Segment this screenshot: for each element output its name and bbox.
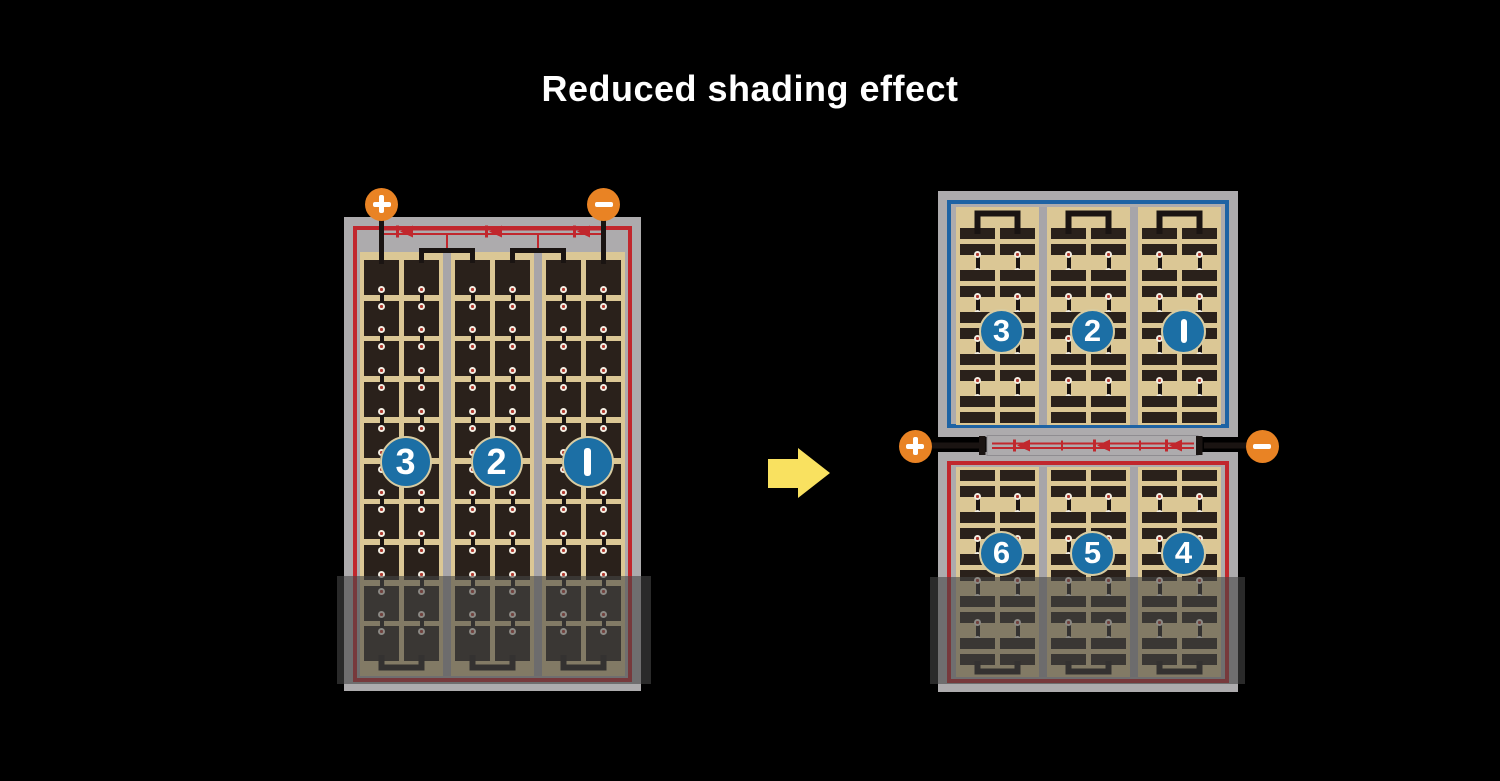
connector-dot xyxy=(509,343,516,350)
cell-connector xyxy=(508,326,518,350)
negative-terminal xyxy=(587,188,620,221)
half-cut-cell xyxy=(1182,470,1217,481)
connector-dot xyxy=(418,425,425,432)
connector-dot xyxy=(1014,493,1021,500)
minus-icon xyxy=(1253,444,1271,449)
connector-dot xyxy=(560,506,567,513)
string-badge-1 xyxy=(1161,309,1206,354)
shading-overlay xyxy=(337,576,651,684)
connector-dot xyxy=(1065,535,1072,542)
half-cut-cell xyxy=(960,354,995,365)
string-badge-6: 6 xyxy=(979,531,1024,576)
diode-bar xyxy=(1013,440,1016,452)
digit-one-bar xyxy=(1181,319,1187,343)
connector-dot xyxy=(378,286,385,293)
connector-dot xyxy=(378,489,385,496)
connector-dot xyxy=(509,326,516,333)
half-cut-cell xyxy=(1182,228,1217,239)
connector-dot xyxy=(509,408,516,415)
connector-dot xyxy=(560,303,567,310)
half-cut-cell xyxy=(1091,396,1126,407)
half-cut-cell xyxy=(1142,228,1177,239)
string-badge-4: 4 xyxy=(1161,531,1206,576)
negative-terminal xyxy=(1246,430,1279,463)
half-cut-cell xyxy=(1000,412,1035,423)
connector-dot xyxy=(600,384,607,391)
connector-dot xyxy=(1014,293,1021,300)
cell-connector xyxy=(599,326,609,350)
half-cut-cell xyxy=(1051,512,1086,523)
half-cut-cell xyxy=(1091,470,1126,481)
cell-connector xyxy=(417,286,427,310)
cell-connector xyxy=(599,286,609,310)
cell-connector xyxy=(559,326,569,350)
circuit-wiring xyxy=(0,0,1500,781)
connector-dot xyxy=(378,506,385,513)
connector-dot xyxy=(378,384,385,391)
connector-dot xyxy=(378,326,385,333)
cell-connector xyxy=(417,326,427,350)
connector-dot xyxy=(560,367,567,374)
diode-triangle xyxy=(1169,440,1182,452)
connector-dot xyxy=(509,506,516,513)
cell-connector xyxy=(508,408,518,432)
connector-dot xyxy=(974,493,981,500)
half-cut-cell xyxy=(1091,354,1126,365)
connector-dot xyxy=(378,425,385,432)
connector-dot xyxy=(469,286,476,293)
connector-dot xyxy=(1156,493,1163,500)
diode-bar xyxy=(1093,440,1096,452)
column-separator xyxy=(1130,207,1138,425)
connector-dot xyxy=(378,367,385,374)
connector-dot xyxy=(600,489,607,496)
connector-dot xyxy=(418,303,425,310)
connector-dot xyxy=(1105,293,1112,300)
terminal-wire xyxy=(931,443,980,449)
string-badge-5: 5 xyxy=(1070,531,1115,576)
connector-dot xyxy=(1065,377,1072,384)
connector-dot xyxy=(418,530,425,537)
diode-bar xyxy=(1165,440,1168,452)
cell-connector xyxy=(599,530,609,554)
connector-dot xyxy=(1105,251,1112,258)
half-cut-cell xyxy=(1142,354,1177,365)
wire-tap xyxy=(1139,441,1141,451)
cell-connector xyxy=(417,489,427,513)
connector-dot xyxy=(469,384,476,391)
half-cut-cell xyxy=(1091,228,1126,239)
half-cut-cell xyxy=(1000,396,1035,407)
connector-dot xyxy=(1105,493,1112,500)
connector-dot xyxy=(560,425,567,432)
connector-dot xyxy=(378,530,385,537)
connector-dot xyxy=(560,408,567,415)
half-cut-cell xyxy=(1142,512,1177,523)
connector-dot xyxy=(418,547,425,554)
connector-dot xyxy=(560,530,567,537)
diode-triangle xyxy=(1017,440,1030,452)
connector-dot xyxy=(600,408,607,415)
connector-dot xyxy=(600,506,607,513)
connector-dot xyxy=(1156,377,1163,384)
string-badge-3: 3 xyxy=(979,309,1024,354)
connector-dot xyxy=(1156,535,1163,542)
half-cut-cell xyxy=(1142,470,1177,481)
connector-dot xyxy=(418,506,425,513)
cell-connector xyxy=(468,408,478,432)
connector-dot xyxy=(1105,377,1112,384)
connector-dot xyxy=(469,530,476,537)
connector-dot xyxy=(600,425,607,432)
connector-dot xyxy=(974,293,981,300)
connector-dot xyxy=(1196,251,1203,258)
connector-dot xyxy=(418,367,425,374)
connector-dot xyxy=(1196,377,1203,384)
connector-dot xyxy=(1196,493,1203,500)
half-cut-cell xyxy=(1182,512,1217,523)
digit-one-bar xyxy=(584,448,591,476)
connector-dot xyxy=(469,408,476,415)
half-cut-cell xyxy=(960,412,995,423)
bus-wire xyxy=(992,443,1194,445)
bus-wire xyxy=(992,447,1194,449)
connector-dot xyxy=(469,343,476,350)
connector-dot xyxy=(418,384,425,391)
string-badge-2: 2 xyxy=(471,436,523,488)
cell-connector xyxy=(468,489,478,513)
cell-connector xyxy=(468,367,478,391)
cell-connector xyxy=(508,286,518,310)
cell-connector xyxy=(468,530,478,554)
connector-dot xyxy=(1065,251,1072,258)
connector-dot xyxy=(1014,251,1021,258)
wire-tap xyxy=(1061,441,1063,451)
positive-terminal xyxy=(899,430,932,463)
half-cut-cell xyxy=(1091,412,1126,423)
column-separator xyxy=(1039,207,1047,425)
connector-dot xyxy=(974,251,981,258)
cell-connector xyxy=(468,326,478,350)
cell-connector xyxy=(559,489,569,513)
connector-dot xyxy=(600,547,607,554)
connector-dot xyxy=(418,408,425,415)
connector-dot xyxy=(418,489,425,496)
half-cut-cell xyxy=(1051,270,1086,281)
connector-dot xyxy=(1014,377,1021,384)
cell-connector xyxy=(468,286,478,310)
connector-dot xyxy=(509,286,516,293)
connector-dot xyxy=(560,326,567,333)
connector-dot xyxy=(560,343,567,350)
connector-dot xyxy=(469,547,476,554)
half-cut-cell xyxy=(1051,412,1086,423)
half-cut-cell xyxy=(1000,512,1035,523)
cell-connector xyxy=(377,367,387,391)
connector-dot xyxy=(378,303,385,310)
half-cut-cell xyxy=(1091,270,1126,281)
cell-connector xyxy=(417,408,427,432)
cell-connector xyxy=(559,408,569,432)
shading-overlay xyxy=(930,577,1245,684)
half-cut-cell xyxy=(1051,470,1086,481)
transform-arrow-icon xyxy=(768,448,830,498)
cell-connector xyxy=(599,489,609,513)
diode-icon xyxy=(1013,440,1030,452)
connector-dot xyxy=(509,367,516,374)
cell-connector xyxy=(377,408,387,432)
connector-dot xyxy=(469,489,476,496)
connector-dot xyxy=(600,326,607,333)
diode-icon xyxy=(1093,440,1110,452)
cell-connector xyxy=(508,489,518,513)
connector-dot xyxy=(974,535,981,542)
positive-terminal xyxy=(365,188,398,221)
connector-dot xyxy=(509,530,516,537)
connector-dot xyxy=(378,408,385,415)
cell-connector xyxy=(377,326,387,350)
diagram-content: 3232654 xyxy=(0,0,1500,781)
diode-triangle xyxy=(1097,440,1110,452)
cell-connector xyxy=(377,286,387,310)
connector-dot xyxy=(469,303,476,310)
cell-connector xyxy=(559,530,569,554)
half-cut-cell xyxy=(960,270,995,281)
diode-icon xyxy=(1165,440,1182,452)
connector-dot xyxy=(600,367,607,374)
connector-dot xyxy=(974,377,981,384)
half-cut-cell xyxy=(960,470,995,481)
connector-dot xyxy=(600,343,607,350)
connector-dot xyxy=(1196,293,1203,300)
string-badge-2: 2 xyxy=(1070,309,1115,354)
cell-connector xyxy=(508,530,518,554)
string-badge-3: 3 xyxy=(380,436,432,488)
connector-dot xyxy=(469,367,476,374)
cell-connector xyxy=(599,367,609,391)
connector-dot xyxy=(600,530,607,537)
cell-connector xyxy=(559,286,569,310)
half-cut-cell xyxy=(1000,228,1035,239)
connector-dot xyxy=(509,547,516,554)
half-cut-cell xyxy=(1091,512,1126,523)
half-cut-cell xyxy=(1182,396,1217,407)
diagram-canvas: Reduced shading effect 3232654 xyxy=(0,0,1500,781)
half-cut-cell xyxy=(1000,270,1035,281)
half-cut-cell xyxy=(960,512,995,523)
plus-icon-vertical xyxy=(379,195,384,213)
connector-dot xyxy=(418,286,425,293)
minus-icon xyxy=(595,202,613,207)
connector-dot xyxy=(1065,293,1072,300)
connector-dot xyxy=(509,489,516,496)
connector-dot xyxy=(418,343,425,350)
cell-connector xyxy=(377,489,387,513)
connector-dot xyxy=(1156,293,1163,300)
half-cut-cell xyxy=(960,228,995,239)
connector-dot xyxy=(560,489,567,496)
cell-connector xyxy=(417,530,427,554)
connector-dot xyxy=(1065,493,1072,500)
connector-dot xyxy=(560,286,567,293)
connector-dot xyxy=(378,547,385,554)
half-cut-cell xyxy=(1182,354,1217,365)
cell-connector xyxy=(377,530,387,554)
cell-connector xyxy=(508,367,518,391)
half-cut-cell xyxy=(1051,228,1086,239)
cell-connector xyxy=(559,367,569,391)
half-cut-cell xyxy=(1000,354,1035,365)
half-cut-cell xyxy=(1142,412,1177,423)
connector-dot xyxy=(560,384,567,391)
cell-connector xyxy=(417,367,427,391)
plus-icon-vertical xyxy=(913,437,918,455)
string-badge-1 xyxy=(562,436,614,488)
connector-dot xyxy=(509,384,516,391)
connector-dot xyxy=(600,303,607,310)
half-cut-cell xyxy=(1051,354,1086,365)
connector-dot xyxy=(418,326,425,333)
half-cut-cell xyxy=(1142,270,1177,281)
half-cut-cell xyxy=(1000,470,1035,481)
half-cut-cell xyxy=(1182,270,1217,281)
connector-dot xyxy=(509,425,516,432)
terminal-wire xyxy=(1204,443,1248,449)
connector-dot xyxy=(469,326,476,333)
connector-dot xyxy=(1156,251,1163,258)
connector-dot xyxy=(509,303,516,310)
connector-dot xyxy=(469,506,476,513)
cell-connector xyxy=(599,408,609,432)
connector-dot xyxy=(469,425,476,432)
half-cut-cell xyxy=(1182,412,1217,423)
half-cut-cell xyxy=(1051,396,1086,407)
connector-dot xyxy=(560,547,567,554)
connector-dot xyxy=(600,286,607,293)
half-cut-cell xyxy=(960,396,995,407)
connector-dot xyxy=(378,343,385,350)
half-cut-cell xyxy=(1142,396,1177,407)
